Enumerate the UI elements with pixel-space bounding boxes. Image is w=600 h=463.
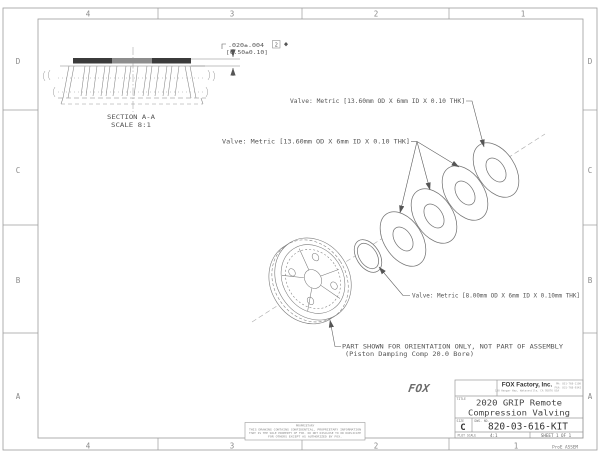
title-label: TITLE xyxy=(457,397,466,401)
engineering-drawing-canvas: 4 3 2 1 4 3 2 1 D C B A D C B A xyxy=(0,0,600,463)
diamond-icon xyxy=(284,42,288,46)
zone-label: 2 xyxy=(374,442,379,451)
plot-scale-value: 4:1 xyxy=(490,433,498,438)
zone-label: 3 xyxy=(230,442,235,451)
zone-label: 2 xyxy=(374,10,379,19)
sheet-value: SHEET 1 OF 1 xyxy=(541,433,572,438)
proprietary-line3: FOR OTHERS EXCEPT AS AUTHORIZED BY FOX. xyxy=(268,435,342,439)
fox-logo: FOX xyxy=(407,382,431,395)
zone-label: 4 xyxy=(86,10,91,19)
zone-label: 1 xyxy=(521,10,526,19)
proprietary-note: PROPRIETARY THIS DRAWING CONTAINS CONFID… xyxy=(245,423,365,441)
leader-valve-mid-3 xyxy=(417,142,459,168)
company-fax: FAX: 831-768-9342 xyxy=(554,386,581,390)
callout-valve-small: Valve: Metric [8.00mm OD X 6mm ID X 0.10… xyxy=(412,293,580,300)
callout-valve-top: Valve: Metric [13.60mm OD X 6mm ID X 0.1… xyxy=(290,98,465,105)
dimension-inch: .020±.004 xyxy=(228,43,265,49)
callout-valve-mid: Valve: Metric [13.60mm OD X 6mm ID X 0.1… xyxy=(222,139,410,146)
zone-label: C xyxy=(16,166,21,175)
shim-stack-bar xyxy=(73,58,191,64)
callout-orientation-line2: (Piston Damping Comp 20.0 Bore) xyxy=(345,351,474,358)
exploded-view xyxy=(252,134,545,338)
piston-isometric xyxy=(254,223,367,338)
zone-label: A xyxy=(16,392,21,401)
company-address: 130 Hangar Way, Watsonville, CA 95076 US… xyxy=(495,389,559,393)
dwg-no-value: 820-03-616-KIT xyxy=(488,422,568,433)
zone-label: B xyxy=(588,276,593,285)
dimension-mm: [0.50±0.10] xyxy=(226,50,268,56)
size-value: C xyxy=(460,423,465,433)
zone-label: 4 xyxy=(86,442,91,451)
title-block: FOX FOX Factory, Inc. 130 Hangar Way, Wa… xyxy=(407,380,583,438)
zone-label: 3 xyxy=(230,10,235,19)
leader-valve-mid-2 xyxy=(417,142,430,191)
drawing-title-line2: Compression Valving xyxy=(468,408,570,418)
zone-label: A xyxy=(588,392,593,401)
footer-note: ProE ASSEM xyxy=(552,445,578,451)
piston-section-lines xyxy=(43,66,215,104)
zone-label: B xyxy=(16,276,21,285)
section-view: SECTION A-A SCALE 8:1 xyxy=(43,47,215,129)
section-label: SECTION A-A xyxy=(107,113,155,121)
leader-orientation xyxy=(330,320,341,347)
leader-valve-top xyxy=(466,101,484,147)
dimension-callout: .020±.004 [0.50±0.10] 2 xyxy=(191,41,288,77)
zone-label: C xyxy=(588,166,593,175)
drawing-sheet: 4 3 2 1 4 3 2 1 D C B A D C B A xyxy=(0,0,600,463)
zone-label: D xyxy=(588,57,593,66)
callout-orientation-line1: PART SHOWN FOR ORIENTATION ONLY, NOT PAR… xyxy=(342,344,563,351)
flag-note: 2 xyxy=(275,43,278,49)
company-name: FOX Factory, Inc. xyxy=(502,382,553,389)
section-scale-label: SCALE 8:1 xyxy=(111,121,151,129)
zone-label: 1 xyxy=(514,442,519,451)
plot-scale-label: PLOT SCALE xyxy=(458,434,477,438)
company-phone: PH: 831-768-1100 xyxy=(556,382,581,386)
drawing-title-line1: 2020 GRIP Remote xyxy=(476,398,562,408)
leader-valve-small xyxy=(379,267,410,296)
zone-label: D xyxy=(16,57,21,66)
